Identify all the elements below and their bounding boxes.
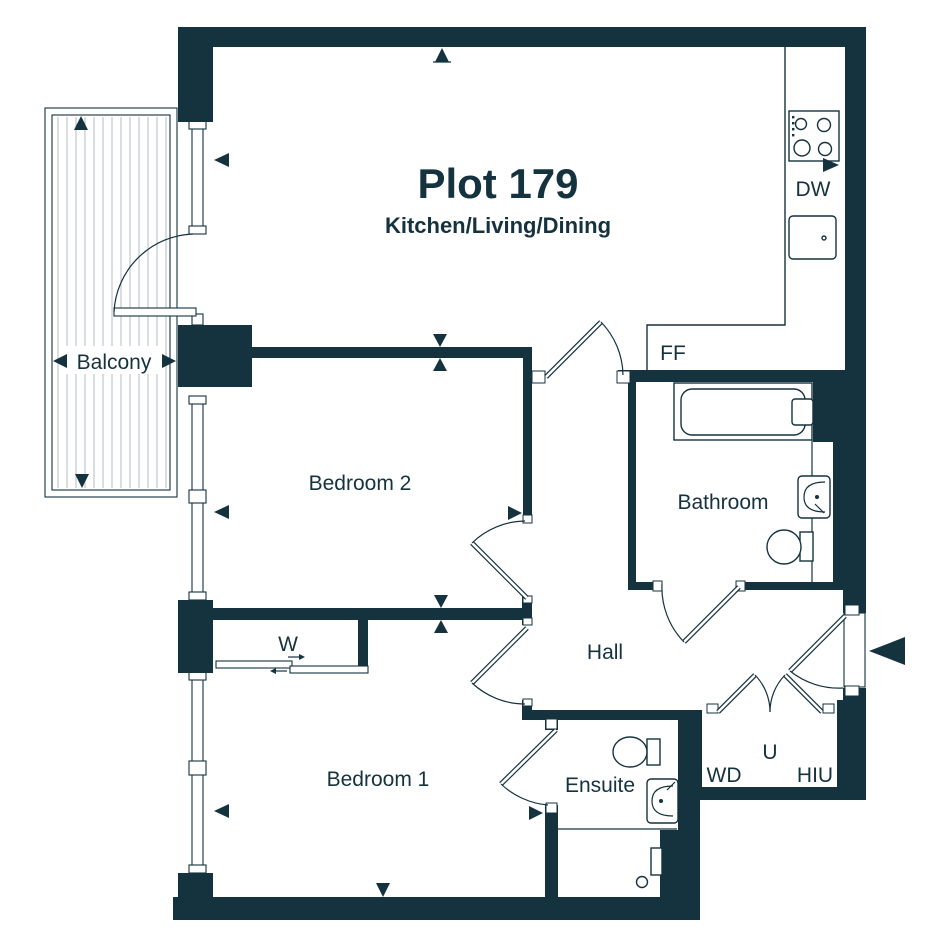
kitchen-door <box>532 322 630 383</box>
dim-arrow-left-icon <box>214 804 229 818</box>
dim-arrow-right-icon <box>508 506 522 520</box>
wardrobe-label: W <box>278 633 298 656</box>
ensuite-label: Ensuite <box>565 774 635 797</box>
hall-label: Hall <box>587 641 623 664</box>
front-door <box>790 605 865 696</box>
bedroom2-door <box>472 515 532 603</box>
dim-arrow-up-icon <box>435 48 449 62</box>
bathroom-label: Bathroom <box>677 491 768 514</box>
dim-arrow-up-icon <box>434 620 448 633</box>
dim-arrow-right-icon <box>529 806 543 820</box>
hiu-label: HIU <box>797 764 833 787</box>
dim-arrow-down-icon <box>433 334 447 347</box>
dishwasher-icon <box>789 216 836 259</box>
utility-label: U <box>762 741 777 764</box>
dim-arrow-down-icon <box>376 883 390 897</box>
bedroom2-label: Bedroom 2 <box>309 472 412 495</box>
entrance-arrow-icon <box>869 637 905 665</box>
floorplan-page: Plot 179 Kitchen/Living/Dining Balcony B… <box>0 0 945 945</box>
bedroom1-label: Bedroom 1 <box>327 768 430 791</box>
bathroom-sink-icon <box>798 476 830 518</box>
wardrobe-sliding-doors <box>216 654 368 674</box>
hob-icon <box>789 111 839 161</box>
dim-arrow-left-icon <box>214 505 229 519</box>
bathroom-toilet-icon <box>767 530 813 564</box>
shower-icon <box>558 829 677 888</box>
utility-double-doors <box>707 675 834 713</box>
bedroom1-door <box>472 618 532 706</box>
labels: Plot 179 Kitchen/Living/Dining Balcony B… <box>77 160 833 797</box>
ensuite-sink-icon <box>647 779 678 823</box>
kitchen-counter <box>647 47 785 370</box>
plot-subtitle: Kitchen/Living/Dining <box>385 213 611 238</box>
dim-arrow-left-icon <box>214 153 229 167</box>
dishwasher-label: DW <box>796 178 831 201</box>
washer-dryer-label: WD <box>707 764 742 787</box>
bathroom-door <box>653 581 745 642</box>
balcony-deck <box>45 108 177 497</box>
ensuite-door <box>501 719 557 813</box>
window-kitchen <box>192 122 203 233</box>
bath-icon <box>674 383 813 440</box>
plot-title: Plot 179 <box>417 160 578 207</box>
dim-arrow-down-icon <box>434 595 448 608</box>
dim-arrow-up-icon <box>433 358 447 371</box>
balcony-label: Balcony <box>77 351 152 374</box>
ensuite-toilet-icon <box>613 737 660 767</box>
fridge-freezer-label: FF <box>660 342 686 365</box>
floorplan-svg: Plot 179 Kitchen/Living/Dining Balcony B… <box>0 0 945 945</box>
